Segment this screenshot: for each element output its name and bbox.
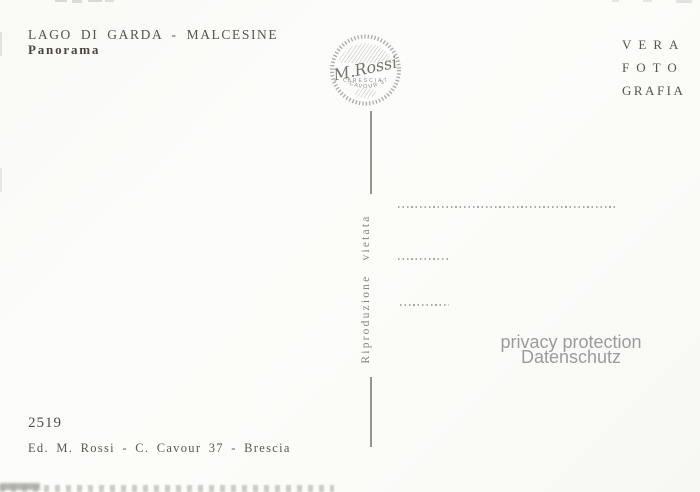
card-number: 2519 <box>28 415 62 432</box>
address-line-3 <box>400 304 449 306</box>
postcard-back: LAGO DI GARDA - MALCESINE Panorama M.Ros… <box>0 0 700 492</box>
scan-artifact-bottom-blob <box>0 483 40 490</box>
scan-artifact <box>612 0 619 2</box>
scan-artifact <box>0 32 2 56</box>
publisher-line: Ed. M. Rossi - C. Cavour 37 - Brescia <box>28 441 291 456</box>
scan-artifact <box>55 0 67 2</box>
scan-artifact <box>676 0 692 3</box>
scan-artifact <box>88 0 102 2</box>
title-block: LAGO DI GARDA - MALCESINE Panorama <box>28 27 278 56</box>
scan-artifact-bottom-strip <box>0 485 334 492</box>
scan-artifact <box>72 0 82 3</box>
watermark-line-2: Datenschutz <box>500 350 641 365</box>
scan-artifact <box>643 0 652 2</box>
divider-line-bottom <box>370 377 372 447</box>
vera-fotografia-block: VERA FOTO GRAFIA <box>622 33 685 102</box>
postcard-subtitle: Panorama <box>28 43 278 56</box>
riproduzione-vietata-label: Riproduzione vietata <box>360 214 372 363</box>
vfg-line-2: FOTO <box>622 56 685 79</box>
postcard-title: LAGO DI GARDA - MALCESINE <box>28 27 278 42</box>
address-line-1 <box>398 206 617 208</box>
photographer-stamp-icon: M.Rossi BRESCIA C.CAVOUR 37 <box>323 26 407 114</box>
scan-artifact <box>0 168 2 192</box>
scan-artifact <box>105 0 114 2</box>
vfg-line-1: VERA <box>622 33 685 56</box>
privacy-watermark: privacy protection Datenschutz <box>500 335 641 365</box>
address-line-2 <box>398 258 448 260</box>
divider-line-top <box>370 111 372 194</box>
vfg-line-3: GRAFIA <box>622 79 685 102</box>
